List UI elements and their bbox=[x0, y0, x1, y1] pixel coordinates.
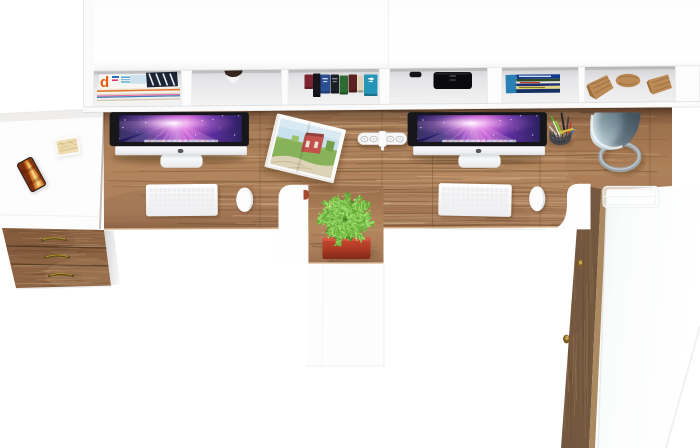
svg-text:d: d bbox=[100, 74, 109, 91]
